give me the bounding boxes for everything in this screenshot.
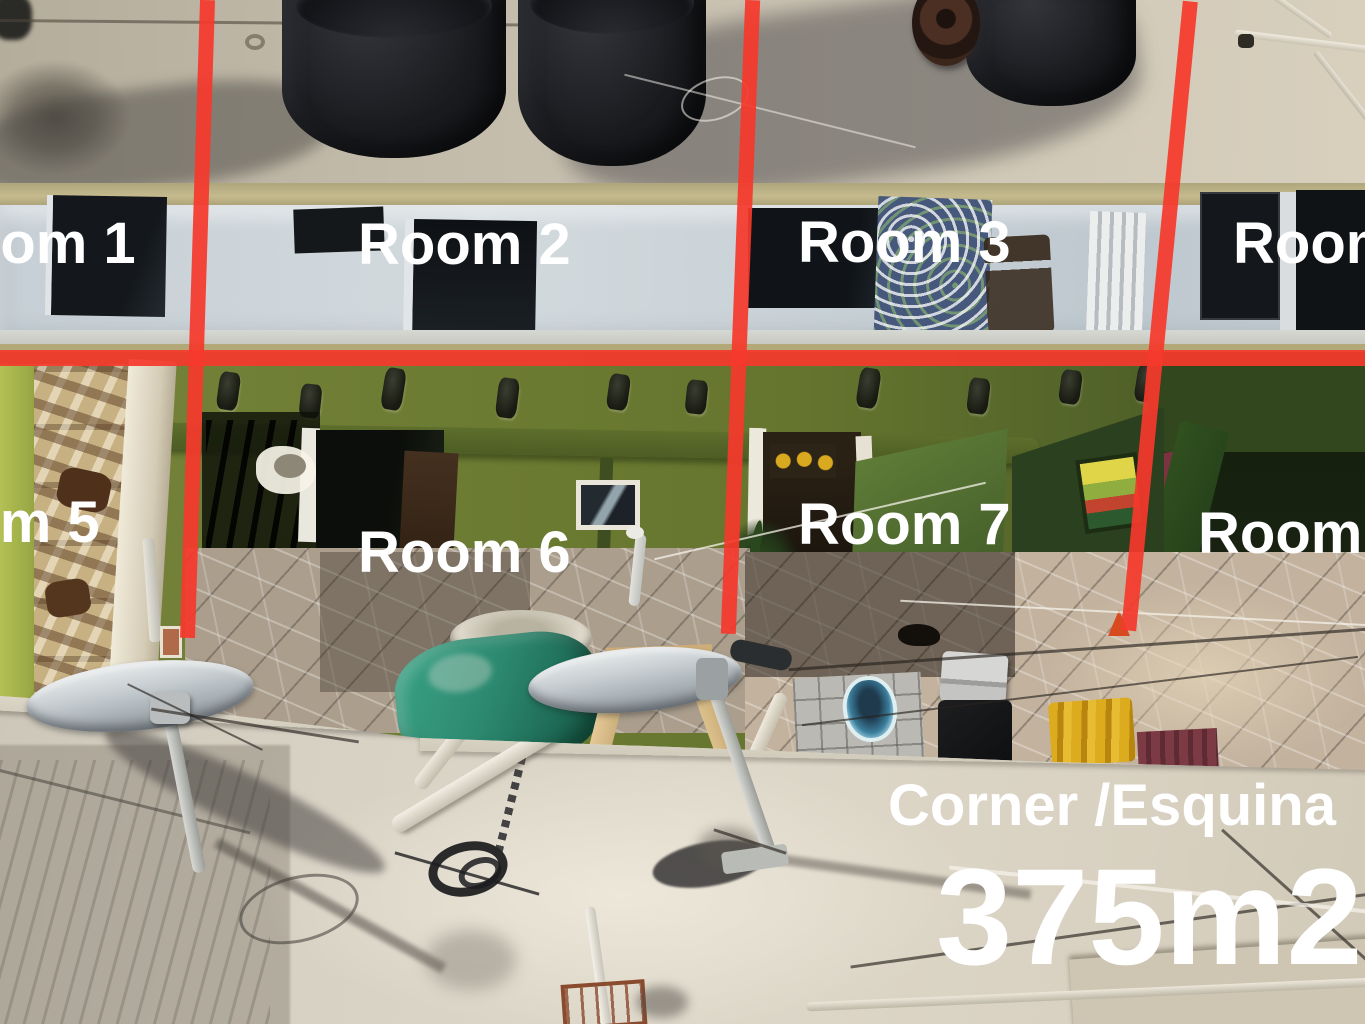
- area-label: 375m2: [936, 849, 1363, 986]
- wall-decoration-center: [274, 454, 306, 478]
- room-label-3: Room 3: [798, 214, 1011, 272]
- dish2-mount: [696, 658, 728, 700]
- room-label-5: Room 5: [0, 494, 100, 552]
- room-label-2: Room 2: [358, 216, 571, 274]
- yellow-towels: [1048, 697, 1136, 767]
- pipe-joint: [1238, 34, 1254, 48]
- beam-hole: [684, 379, 708, 415]
- roof-stain-2: [636, 986, 688, 1018]
- water-tank-3: [966, 0, 1136, 106]
- corner-label: Corner /Esquina: [888, 777, 1336, 835]
- white-blinds: [1086, 211, 1146, 339]
- rusty-frame: [560, 979, 647, 1024]
- black-cat: [898, 624, 940, 646]
- room-label-8: Room 8: [1198, 505, 1365, 563]
- room-label-7: Room 7: [798, 496, 1011, 554]
- metal-ring: [245, 34, 265, 50]
- dark-equipment: [938, 700, 1012, 766]
- dish2-pole-cap: [626, 526, 644, 539]
- small-artwork: [160, 626, 182, 658]
- annotated-property-photo: Room 1 Room 2 Room 3 Room 4 Room 5 Room …: [0, 0, 1365, 1024]
- sunflower-art: [770, 444, 836, 478]
- roof-stain-3: [426, 930, 516, 990]
- small-window: [576, 480, 640, 530]
- room-label-1: Room 1: [0, 215, 136, 273]
- room-label-4: Room 4: [1233, 215, 1365, 273]
- room-label-6: Room 6: [358, 524, 571, 582]
